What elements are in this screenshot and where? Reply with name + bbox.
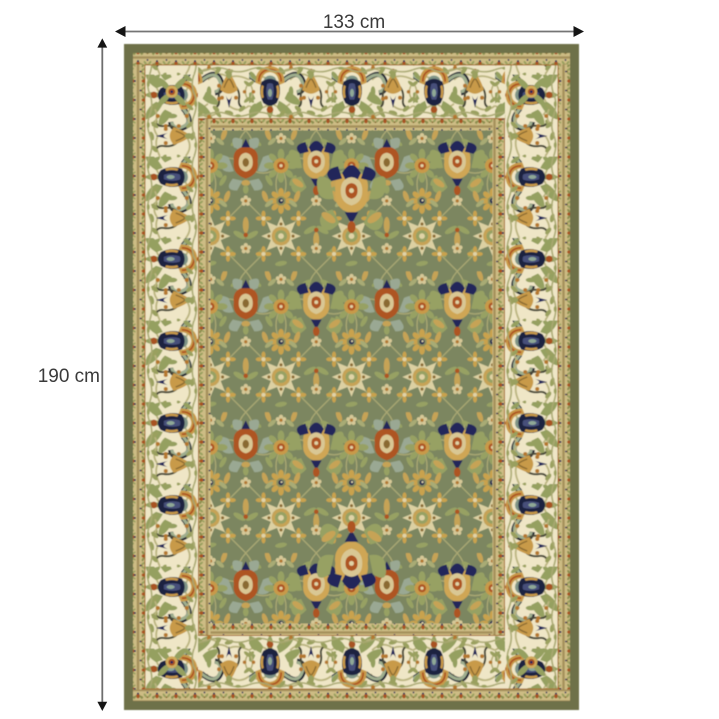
- svg-text:133 cm: 133 cm: [323, 12, 385, 33]
- svg-text:190 cm: 190 cm: [38, 366, 100, 387]
